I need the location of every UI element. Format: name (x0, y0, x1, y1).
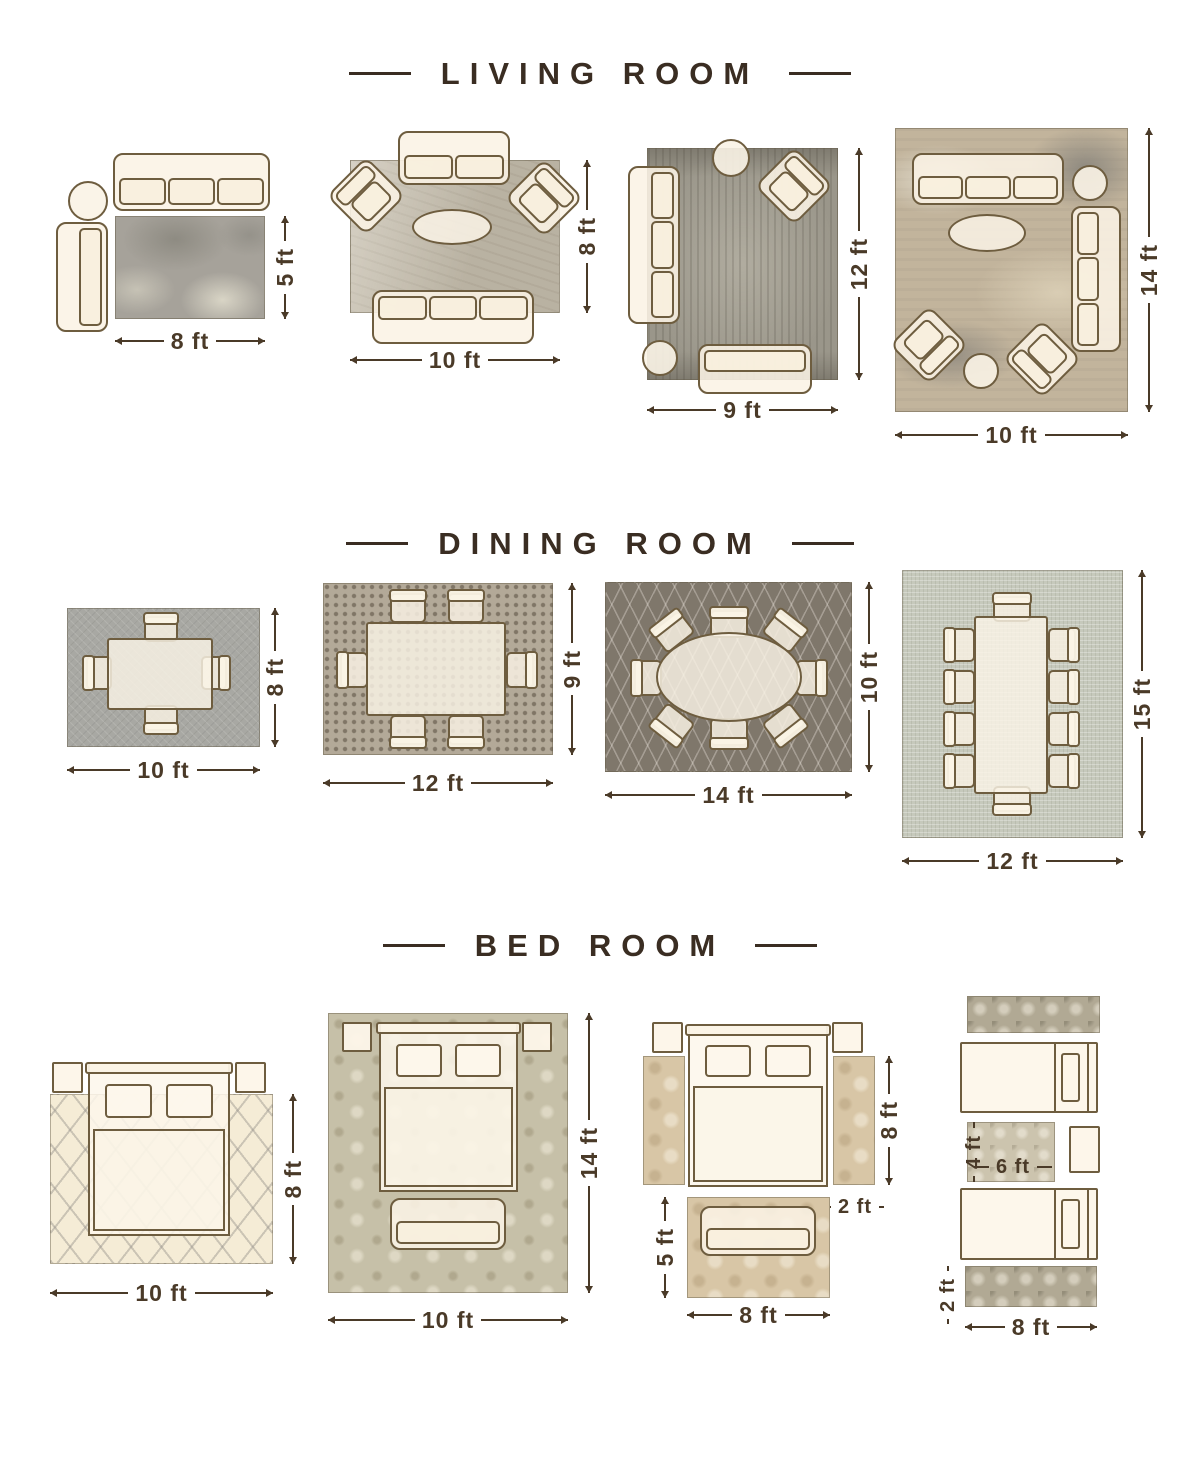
dimension-line (974, 1166, 989, 1168)
sofa-cushion (1077, 257, 1099, 300)
dimension-line (350, 359, 422, 361)
dimension-label: 6 ft (996, 1157, 1030, 1177)
dimension-line (284, 216, 286, 241)
dimension-line (902, 860, 979, 862)
middle-rug-width-dimension: 6 ft (974, 1152, 1052, 1182)
runner-rug-right (833, 1056, 875, 1185)
dimension-line (888, 1147, 890, 1185)
loveseat-vertical (56, 222, 108, 332)
dimension-line (868, 710, 870, 772)
dimension-line (1148, 303, 1150, 412)
nightstand (52, 1062, 83, 1093)
bed-divider (1054, 1044, 1056, 1111)
runner-height-dimension: 2 ft (932, 1266, 964, 1307)
dimension-line (1141, 570, 1143, 671)
dimension-label: 2 ft (838, 1197, 872, 1217)
dimension-line (664, 1274, 666, 1298)
sofa-cushion (217, 178, 264, 205)
pillow (455, 1044, 501, 1077)
dining-chair (1048, 670, 1076, 704)
headboard (85, 1062, 233, 1074)
sofa-cushion (168, 178, 215, 205)
height-dimension: 8 ft (258, 608, 292, 747)
loveseat (700, 1206, 816, 1256)
runner-width-dimension: 8 ft (965, 1312, 1097, 1342)
dimension-line (292, 1205, 294, 1264)
dimension-line (195, 1292, 273, 1294)
dimension-label: 8 ft (282, 1160, 305, 1199)
dimension-line (1045, 434, 1128, 436)
dimension-label: 8 ft (739, 1304, 778, 1327)
nightstand (652, 1022, 683, 1053)
dimension-line (328, 1319, 415, 1321)
dimension-line (605, 794, 695, 796)
dining-chair (506, 652, 534, 688)
dimension-label: 12 ft (848, 238, 871, 290)
dimension-line (274, 608, 276, 651)
dimension-line (858, 297, 860, 380)
dimension-line (879, 1206, 884, 1208)
sofa-cushion (455, 155, 504, 179)
nightstand (342, 1022, 372, 1052)
rug-size-guide: LIVING ROOM 8 ft 5 ft 10 ft 8 ft 9 ft (0, 0, 1200, 1467)
loveseat-bottom (698, 344, 812, 394)
headboard (685, 1024, 831, 1036)
height-dimension: 10 ft (852, 582, 886, 772)
dimension-label: 15 ft (1131, 678, 1154, 730)
dimension-line (762, 794, 852, 796)
dimension-label: 9 ft (723, 399, 762, 422)
dining-chair (1048, 754, 1076, 788)
pillow (1061, 1053, 1080, 1103)
rug-width-dimension: 8 ft (687, 1300, 830, 1330)
nightstand (235, 1062, 266, 1093)
dining-chair (947, 670, 975, 704)
dimension-line (115, 340, 164, 342)
living-rug-8x5 (115, 216, 265, 319)
dimension-label: 8 ft (576, 217, 599, 256)
sofa-cushion (396, 1221, 500, 1244)
dimension-line (292, 1094, 294, 1153)
dimension-label: 12 ft (412, 772, 464, 795)
width-dimension: 14 ft (605, 780, 852, 810)
bed-height-dimension: 8 ft (872, 1056, 906, 1185)
width-dimension: 12 ft (902, 846, 1123, 876)
dimension-label: 10 ft (429, 349, 481, 372)
height-dimension: 12 ft (842, 148, 876, 380)
height-dimension: 9 ft (555, 583, 589, 755)
dimension-line (588, 1186, 590, 1293)
bed (88, 1062, 230, 1236)
sofa-cushion (651, 271, 674, 318)
height-dimension: 14 ft (572, 1013, 606, 1293)
pillow (1061, 1199, 1080, 1249)
height-dimension: 14 ft (1132, 128, 1166, 412)
sofa-cushion (1077, 303, 1099, 346)
width-dimension: 9 ft (647, 395, 838, 425)
headboard (376, 1022, 521, 1034)
bed-divider (1054, 1190, 1056, 1258)
oval-coffee-table (948, 214, 1026, 252)
dimension-line (571, 583, 573, 643)
dimension-line (1141, 737, 1143, 838)
nightstand (1069, 1126, 1100, 1173)
dimension-label: 2 ft (938, 1278, 958, 1312)
dimension-line (947, 1319, 949, 1324)
dimension-label: 12 ft (986, 850, 1038, 873)
dimension-label: 8 ft (1012, 1316, 1051, 1339)
bed (379, 1022, 518, 1192)
twin-bed (960, 1042, 1098, 1113)
oval-dining-table (656, 632, 802, 722)
runner-rug-bottom (965, 1266, 1097, 1307)
dining-chair (448, 593, 484, 623)
dimension-line (769, 409, 838, 411)
dining-chair (947, 712, 975, 746)
dimension-line (488, 359, 560, 361)
dimension-label: 10 ft (422, 1309, 474, 1332)
pillow (396, 1044, 442, 1077)
dimension-line (274, 704, 276, 747)
dimension-label: 8 ft (264, 658, 287, 697)
width-dimension: 10 ft (895, 420, 1128, 450)
width-dimension: 10 ft (350, 345, 560, 375)
round-side-table (963, 353, 999, 389)
section-heading: DINING ROOM (438, 528, 762, 559)
section-heading: LIVING ROOM (441, 58, 759, 89)
sofa-cushion (119, 178, 166, 205)
dimension-line (471, 782, 553, 784)
dining-chair (947, 754, 975, 788)
dimension-line (973, 1122, 975, 1128)
dimension-line (868, 582, 870, 644)
blanket (693, 1086, 823, 1182)
dimension-line (1046, 860, 1123, 862)
title-dash-left (349, 72, 411, 75)
sofa-cushion (1077, 212, 1099, 255)
dimension-line (323, 782, 405, 784)
sofa-cushion (479, 296, 528, 320)
headboard (1087, 1190, 1089, 1258)
dining-chair (1048, 628, 1076, 662)
dimension-line (67, 769, 130, 771)
sofa-cushion (429, 296, 478, 320)
width-dimension: 10 ft (67, 755, 260, 785)
sofa-three-seat-vertical (1071, 206, 1121, 352)
dining-chair (947, 628, 975, 662)
dining-chair (390, 715, 426, 745)
dimension-label: 9 ft (561, 650, 584, 689)
nightstand (522, 1022, 552, 1052)
dimension-line (481, 1319, 568, 1321)
round-side-table (712, 139, 750, 177)
bench (390, 1198, 506, 1250)
dining-table (974, 616, 1048, 794)
runner-rug-top (967, 996, 1100, 1033)
dimension-line (785, 1314, 830, 1316)
dimension-line (1057, 1326, 1097, 1328)
pillow (105, 1084, 152, 1118)
pillow (166, 1084, 213, 1118)
width-dimension: 10 ft (328, 1305, 568, 1335)
height-dimension: 15 ft (1125, 570, 1159, 838)
runner-rug-left (643, 1056, 685, 1185)
width-dimension: 8 ft (115, 326, 265, 356)
dimension-line (216, 340, 265, 342)
dimension-label: 10 ft (985, 424, 1037, 447)
dimension-line (284, 294, 286, 319)
dimension-label: 14 ft (578, 1127, 601, 1179)
dimension-line (895, 434, 978, 436)
dimension-line (586, 263, 588, 313)
pillow (765, 1045, 811, 1077)
sofa-cushion (706, 1228, 810, 1250)
dimension-line (664, 1197, 666, 1221)
dimension-line (965, 1326, 1005, 1328)
title-dash-right (792, 542, 854, 545)
dining-chair (710, 718, 748, 746)
dimension-label: 10 ft (135, 1282, 187, 1305)
dining-chair (390, 593, 426, 623)
oval-coffee-table (412, 209, 492, 245)
width-dimension: 10 ft (50, 1278, 273, 1308)
sofa-three-seat-vertical (628, 166, 680, 324)
bed (688, 1024, 828, 1187)
dining-chair (448, 715, 484, 745)
dimension-line (588, 1013, 590, 1120)
height-dimension: 8 ft (570, 160, 604, 313)
dimension-label: 8 ft (171, 330, 210, 353)
sofa-three-seat (372, 290, 534, 344)
sofa-three-seat (113, 153, 270, 211)
dimension-label: 8 ft (878, 1101, 901, 1140)
dimension-line (1148, 128, 1150, 237)
headboard (1087, 1044, 1089, 1111)
runner-width-dimension: 2 ft (826, 1192, 884, 1222)
dimension-line (888, 1056, 890, 1094)
dimension-label: 14 ft (702, 784, 754, 807)
dimension-line (50, 1292, 128, 1294)
sofa-cushion (651, 172, 674, 219)
sofa-cushion (965, 176, 1010, 199)
title-dash-left (346, 542, 408, 545)
dimension-label: 10 ft (858, 651, 881, 703)
twin-bed (960, 1188, 1098, 1260)
sofa-cushion (79, 228, 102, 326)
sofa-cushion (704, 350, 806, 372)
sofa-cushion (651, 221, 674, 268)
dining-table (366, 622, 506, 716)
dining-room-title: DINING ROOM (0, 528, 1200, 559)
round-side-table (1072, 165, 1108, 201)
pillow (705, 1045, 751, 1077)
height-dimension: 8 ft (276, 1094, 310, 1264)
dimension-line (858, 148, 860, 231)
blanket (384, 1087, 513, 1187)
loveseat-top (398, 131, 510, 185)
dimension-line (197, 769, 260, 771)
sofa-three-seat (912, 153, 1064, 205)
nightstand (832, 1022, 863, 1053)
sofa-cushion (1013, 176, 1058, 199)
sofa-cushion (918, 176, 963, 199)
dimension-line (647, 409, 716, 411)
sofa-cushion (378, 296, 427, 320)
title-dash-right (789, 72, 851, 75)
dimension-line (687, 1314, 732, 1316)
sofa-cushion (404, 155, 453, 179)
dimension-line (1037, 1166, 1052, 1168)
dimension-label: 5 ft (654, 1228, 677, 1267)
title-dash-right (755, 944, 817, 947)
dining-chair (1048, 712, 1076, 746)
dimension-line (947, 1266, 949, 1271)
section-heading: BED ROOM (475, 930, 726, 961)
round-side-table (642, 340, 678, 376)
height-dimension: 5 ft (268, 216, 302, 319)
living-room-title: LIVING ROOM (0, 58, 1200, 89)
dimension-label: 14 ft (1138, 244, 1161, 296)
title-dash-left (383, 944, 445, 947)
dining-table (107, 638, 213, 710)
dimension-label: 5 ft (274, 248, 297, 287)
rug-height-dimension: 5 ft (648, 1197, 682, 1298)
blanket (93, 1129, 225, 1231)
dimension-line (571, 695, 573, 755)
round-side-table (68, 181, 108, 221)
dimension-label: 10 ft (137, 759, 189, 782)
width-dimension: 12 ft (323, 768, 553, 798)
dimension-line (586, 160, 588, 210)
dining-chair (340, 652, 368, 688)
bed-room-title: BED ROOM (0, 930, 1200, 961)
